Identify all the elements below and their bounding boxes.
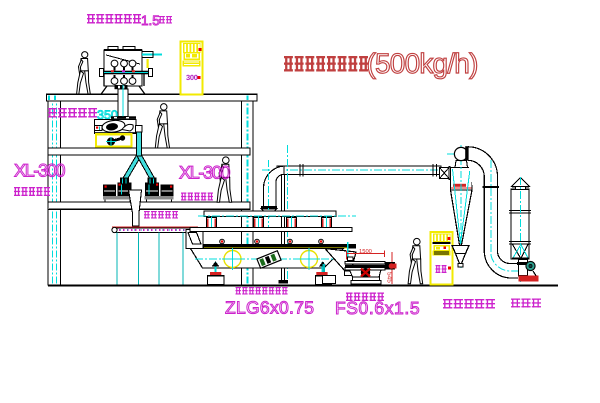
svg-text:ZLG6x0.75: ZLG6x0.75 — [225, 298, 314, 318]
svg-text:300: 300 — [186, 73, 198, 82]
svg-text:1500: 1500 — [359, 248, 372, 255]
svg-text:XL-300: XL-300 — [179, 163, 231, 183]
svg-text:(500kg/h): (500kg/h) — [367, 48, 478, 79]
svg-text:FS0.6x1.5: FS0.6x1.5 — [335, 298, 420, 318]
svg-text:545: 545 — [386, 272, 393, 283]
svg-text:1.5: 1.5 — [141, 13, 160, 28]
svg-text:XL-300: XL-300 — [14, 161, 66, 181]
